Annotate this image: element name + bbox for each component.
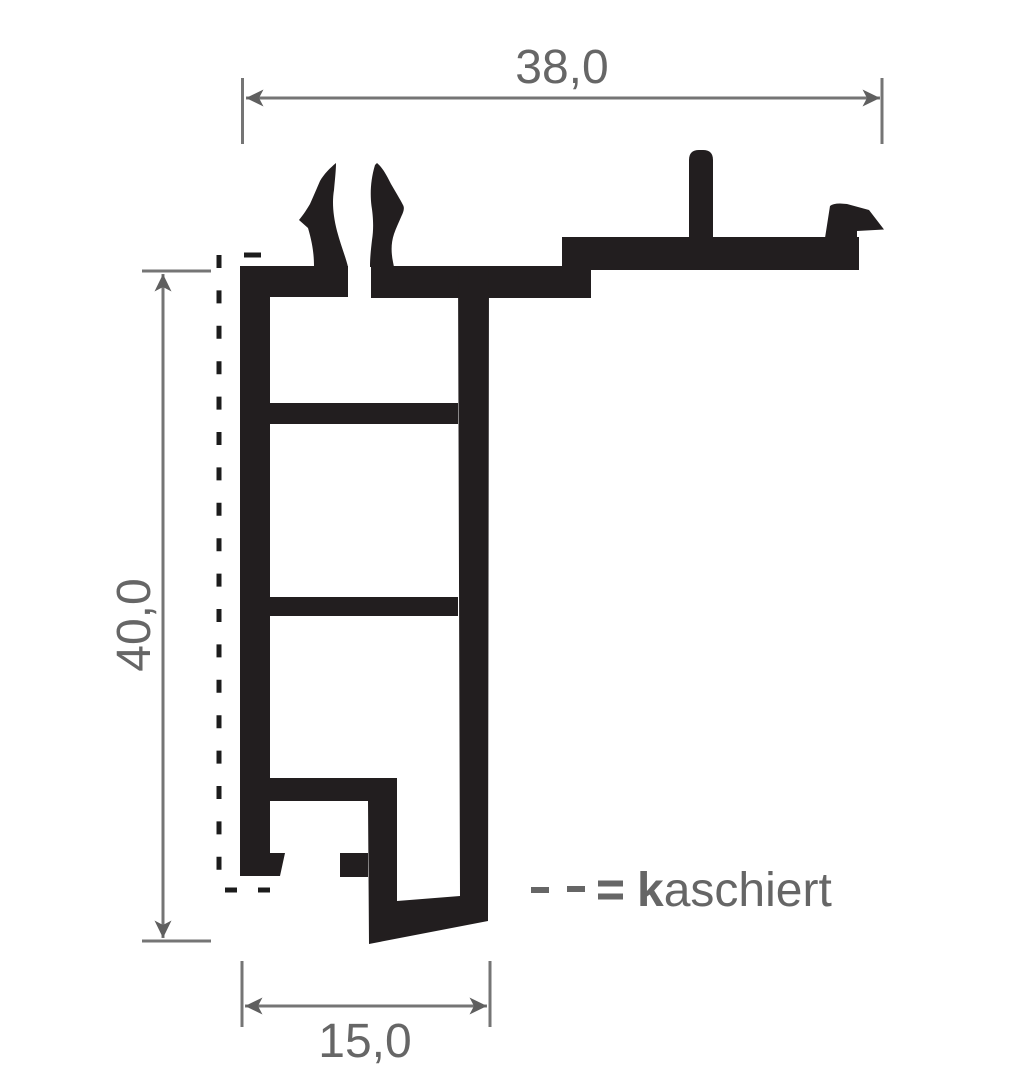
svg-text:40,0: 40,0 [108,578,161,671]
svg-text:15,0: 15,0 [318,1015,411,1068]
svg-text:kaschiert: kaschiert [637,864,832,917]
svg-text:38,0: 38,0 [515,41,608,94]
